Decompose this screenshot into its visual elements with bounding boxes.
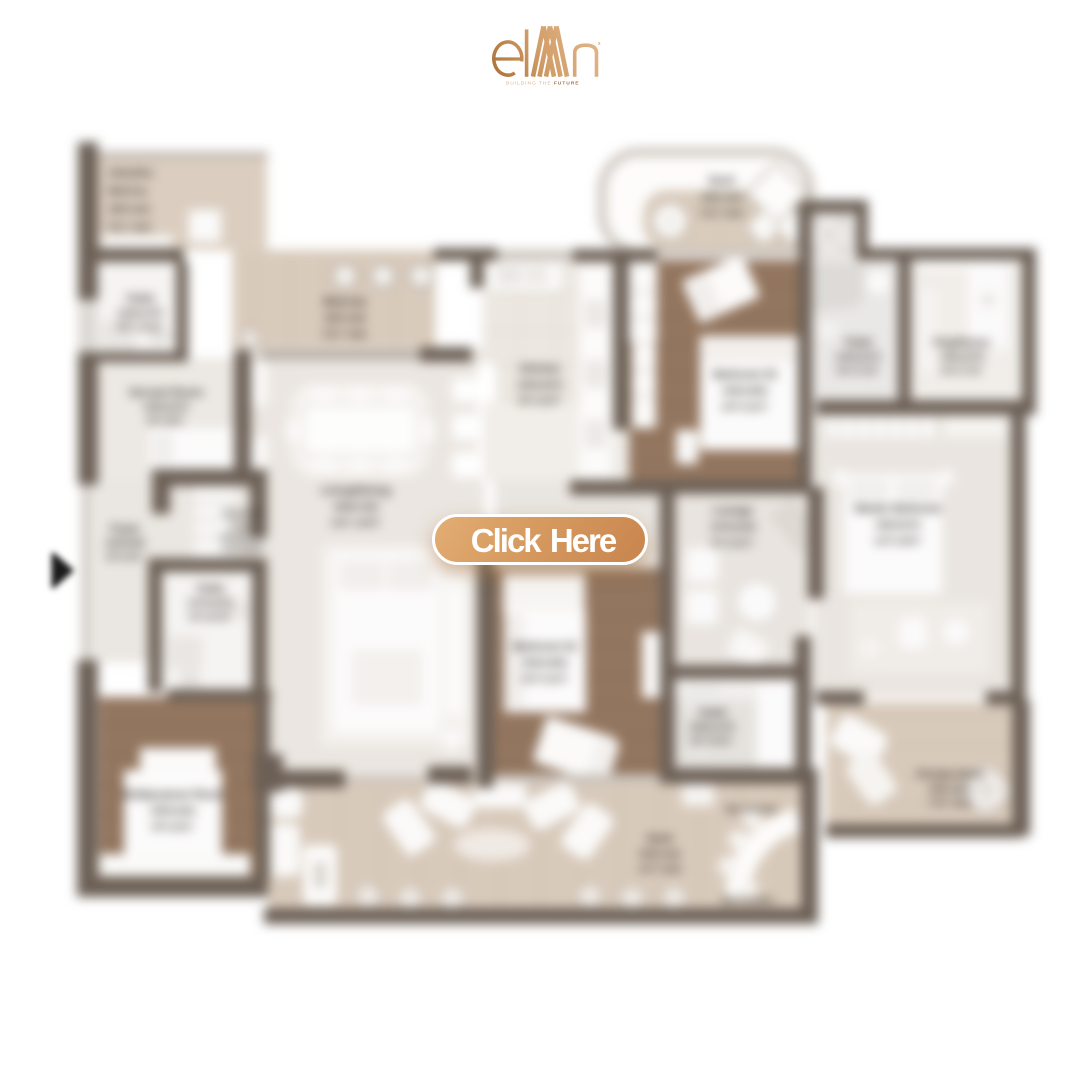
- svg-text:Toilet: Toilet: [196, 583, 225, 595]
- svg-text:1525x1475: 1525x1475: [117, 308, 162, 318]
- svg-text:1525x950: 1525x950: [105, 538, 145, 548]
- svg-text:5'11" wide: 5'11" wide: [323, 329, 366, 339]
- svg-text:12'0"x18'0": 12'0"x18'0": [874, 536, 922, 546]
- svg-text:Multipurpose Room: Multipurpose Room: [121, 789, 224, 801]
- svg-text:5'11" wide: 5'11" wide: [700, 208, 743, 218]
- svg-text:Puja/Dress: Puja/Dress: [934, 337, 991, 349]
- svg-text:11'3" wide: 11'3" wide: [638, 864, 681, 874]
- svg-text:12'6" x24'6": 12'6" x24'6": [331, 518, 381, 528]
- svg-text:Utility/Mini: Utility/Mini: [108, 168, 154, 178]
- svg-text:8'0"x6'8": 8'0"x6'8": [147, 416, 185, 426]
- svg-text:Foyer: Foyer: [110, 523, 141, 535]
- svg-text:1075x2075: 1075x2075: [187, 598, 232, 608]
- svg-text:Toilet: Toilet: [698, 707, 727, 719]
- svg-text:8'0"x4'10": 8'0"x4'10": [691, 736, 734, 746]
- svg-text:Living/Dining: Living/Dining: [321, 485, 391, 497]
- svg-text:10'0"x12'0": 10'0"x12'0": [521, 674, 569, 684]
- svg-text:Balcony: Balcony: [324, 296, 368, 308]
- svg-text:Deck: Deck: [709, 175, 736, 187]
- svg-text:3950x7450: 3950x7450: [333, 502, 378, 512]
- svg-text:Bedroom 03: Bedroom 03: [713, 369, 777, 381]
- svg-text:Lounge: Lounge: [713, 505, 753, 517]
- svg-text:1800 wide: 1800 wide: [108, 204, 151, 214]
- svg-text:2400 wide: 2400 wide: [929, 784, 972, 794]
- svg-text:2475x3345: 2475x3345: [710, 522, 755, 532]
- svg-text:5'0"x7'10": 5'0"x7'10": [837, 366, 880, 376]
- svg-text:Toilet: Toilet: [844, 337, 873, 349]
- svg-text:5'11" wide: 5'11" wide: [108, 222, 151, 232]
- svg-text:BUILDING THE FUTURE: BUILDING THE FUTURE: [506, 80, 579, 86]
- svg-text:10'0"x12'0": 10'0"x12'0": [721, 402, 769, 412]
- svg-text:2400x4075: 2400x4075: [517, 380, 562, 390]
- svg-text:3050x3655: 3050x3655: [522, 658, 567, 668]
- svg-text:2400x2075: 2400x2075: [143, 402, 188, 412]
- svg-text:5'0"x3'0": 5'0"x3'0": [106, 552, 144, 562]
- svg-text:x: x: [598, 41, 601, 47]
- svg-text:Entrance: Entrance: [224, 508, 263, 518]
- svg-text:Master Bedroom: Master Bedroom: [855, 503, 942, 515]
- svg-text:Bar Counter: Bar Counter: [726, 804, 779, 814]
- svg-text:8'1"x11'0": 8'1"x11'0": [712, 538, 754, 548]
- svg-text:9'8"x10'6": 9'8"x10'6": [152, 822, 195, 832]
- svg-text:3050x3655: 3050x3655: [722, 386, 767, 396]
- svg-text:1800 wide: 1800 wide: [701, 192, 744, 202]
- svg-text:Bedroom 02: Bedroom 02: [513, 641, 577, 653]
- svg-text:Bar Counter: Bar Counter: [722, 895, 775, 905]
- svg-text:1475x1525: 1475x1525: [220, 532, 265, 542]
- svg-text:Servant Room: Servant Room: [129, 387, 204, 399]
- svg-text:3435 wide: 3435 wide: [639, 849, 682, 859]
- svg-text:1525x2375: 1525x2375: [835, 352, 880, 362]
- svg-text:8'0"x13'5": 8'0"x13'5": [519, 396, 562, 406]
- svg-text:Foyer: Foyer: [231, 520, 256, 530]
- svg-text:4'10"x5'0": 4'10"x5'0": [222, 544, 265, 554]
- svg-text:1800 wide: 1800 wide: [324, 313, 367, 323]
- svg-text:Toilet: Toilet: [126, 293, 155, 305]
- svg-text:7'10" wide: 7'10" wide: [928, 798, 972, 808]
- svg-text:5'0" x4'10": 5'0" x4'10": [117, 322, 162, 332]
- svg-text:3655x5475: 3655x5475: [875, 520, 920, 530]
- svg-text:2950x3200: 2950x3200: [150, 806, 195, 816]
- svg-text:Balcony: Balcony: [108, 186, 147, 197]
- svg-text:1450x2375: 1450x2375: [939, 352, 984, 362]
- svg-text:3'6"x6'10": 3'6"x6'10": [189, 612, 232, 622]
- svg-text:Kitchen: Kitchen: [520, 363, 561, 375]
- svg-text:Private Deck: Private Deck: [917, 769, 984, 781]
- svg-text:2400x1475: 2400x1475: [689, 722, 734, 732]
- svg-text:Deck: Deck: [647, 833, 674, 845]
- svg-text:4'9"x7'10": 4'9"x7'10": [941, 366, 984, 376]
